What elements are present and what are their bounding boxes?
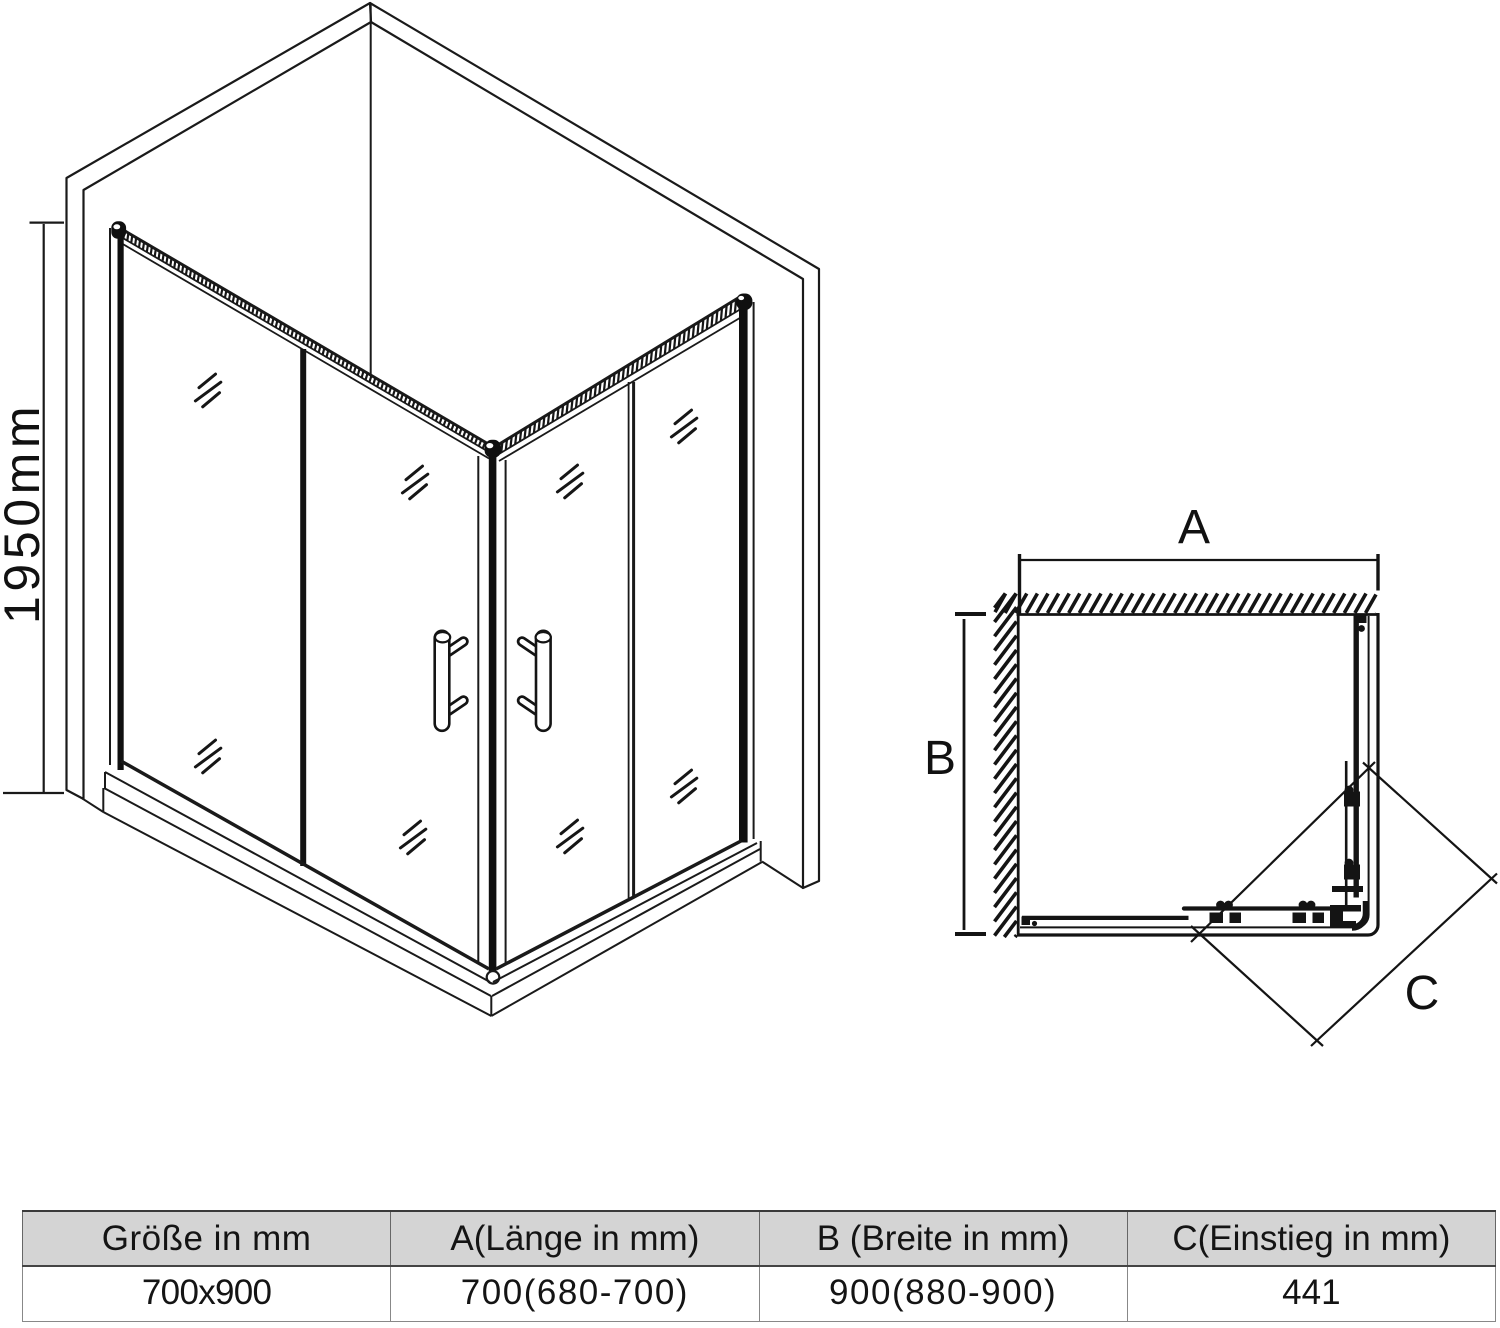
svg-text:C: C (1405, 967, 1440, 1020)
svg-text:B: B (924, 732, 956, 785)
svg-text:1950mm: 1950mm (0, 402, 50, 624)
svg-text:A: A (1178, 501, 1210, 554)
